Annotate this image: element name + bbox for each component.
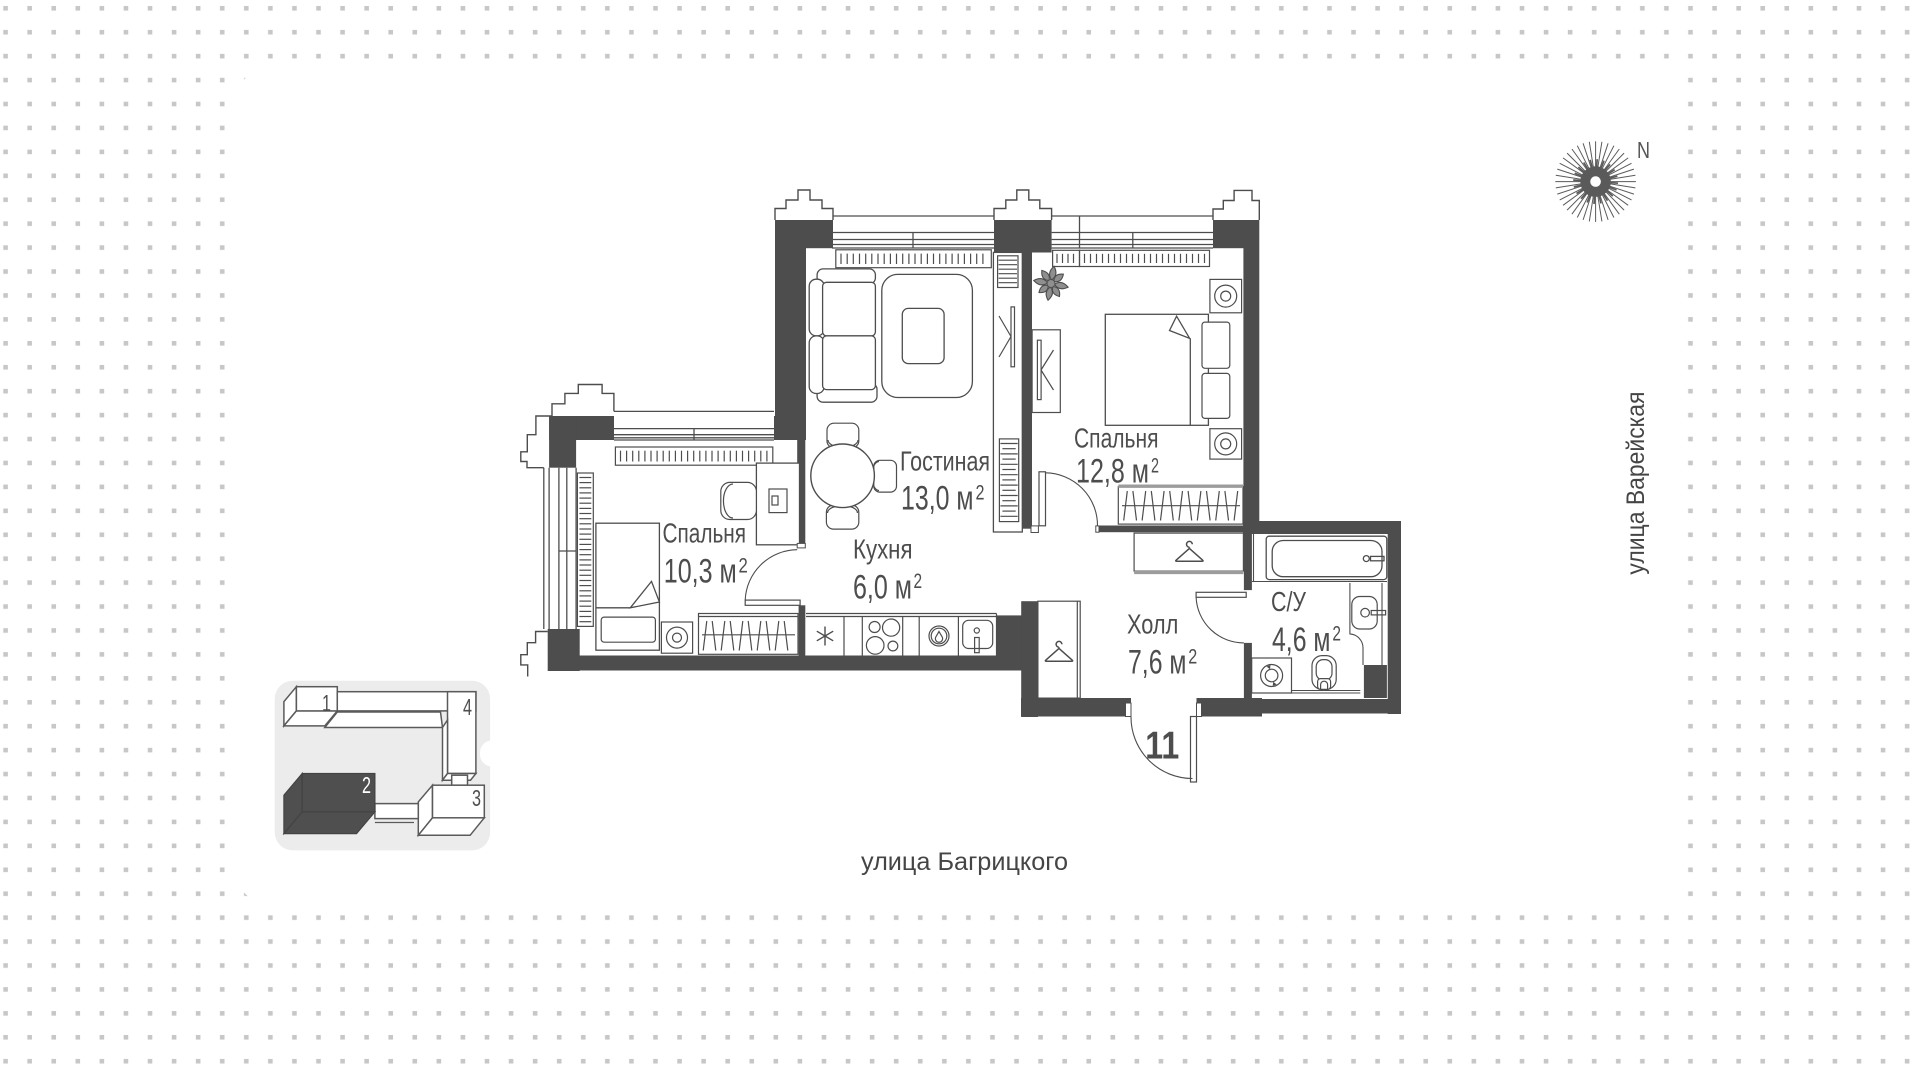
svg-text:Спальня: Спальня	[663, 518, 747, 549]
svg-text:2: 2	[739, 554, 748, 577]
svg-text:2: 2	[976, 481, 985, 504]
svg-text:Гостиная: Гостиная	[900, 446, 990, 477]
svg-text:Холл: Холл	[1127, 609, 1178, 640]
svg-text:С/У: С/У	[1271, 586, 1306, 617]
svg-text:2: 2	[914, 570, 923, 593]
svg-text:6,0 м: 6,0 м	[853, 568, 912, 606]
svg-text:10,3 м: 10,3 м	[664, 553, 737, 591]
svg-text:4,6 м: 4,6 м	[1272, 621, 1331, 659]
svg-text:N: N	[1637, 137, 1650, 163]
svg-text:2: 2	[1332, 623, 1341, 646]
svg-text:2: 2	[1188, 645, 1197, 668]
svg-text:4: 4	[463, 694, 472, 720]
svg-text:2: 2	[1151, 454, 1159, 477]
svg-text:Спальня: Спальня	[1074, 422, 1159, 453]
svg-text:11: 11	[1145, 724, 1179, 767]
svg-text:2: 2	[362, 772, 371, 798]
svg-text:12,8 м: 12,8 м	[1076, 453, 1149, 491]
svg-text:улица Варейская: улица Варейская	[1622, 392, 1650, 575]
svg-text:13,0 м: 13,0 м	[901, 480, 974, 518]
svg-text:1: 1	[322, 690, 331, 716]
svg-text:Кухня: Кухня	[853, 533, 913, 564]
svg-text:7,6 м: 7,6 м	[1128, 644, 1187, 682]
svg-text:улица Багрицкого: улица Багрицкого	[861, 848, 1068, 876]
svg-text:3: 3	[472, 785, 481, 811]
